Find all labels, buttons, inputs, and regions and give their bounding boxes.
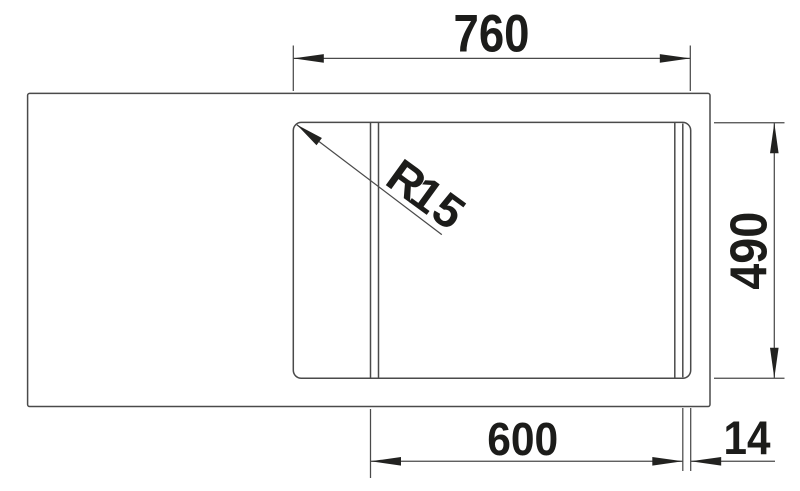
- svg-text:R15: R15: [377, 148, 475, 239]
- svg-text:760: 760: [454, 5, 530, 64]
- svg-text:14: 14: [724, 411, 771, 464]
- svg-text:600: 600: [487, 413, 558, 465]
- svg-text:490: 490: [720, 212, 778, 290]
